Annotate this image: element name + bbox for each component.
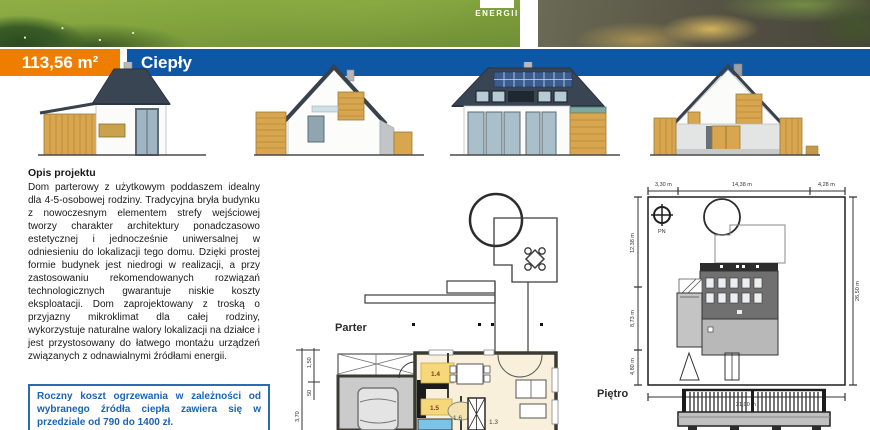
heating-cost-note: Roczny koszt ogrzewania w zależności od … [28, 384, 270, 430]
elevation-front-drawing [36, 62, 211, 159]
site-plan-drawing: 3,30 m 14,38 m 4,28 m 12,38 m 8,73 m 4,8… [570, 175, 870, 430]
upper-floor-label: Piętro [597, 388, 628, 400]
site-dim-left-1: 12,38 m [630, 233, 636, 253]
elevation-side-right-drawing [648, 62, 823, 159]
upper-floor-balcony-fragment [678, 390, 830, 430]
energy-logo-text: ENERGII [452, 9, 542, 18]
compass-label: PN [658, 229, 666, 235]
plan-dim-1: 1,50 [307, 357, 313, 368]
plan-dim-3: 3,70 [295, 411, 301, 422]
energy-logo-icon [480, 0, 514, 8]
catalog-page: ENERGII 113,56 m² Ciepły [0, 0, 870, 430]
car-symbol [358, 388, 398, 430]
site-dim-top-3: 4,28 m [818, 182, 835, 188]
plan-dim-2: 50 [307, 390, 313, 396]
house-dusk-photo [538, 0, 870, 47]
flower-speckles [0, 0, 208, 47]
room-1-3: 1.3 [489, 419, 498, 426]
description-heading: Opis projektu [28, 167, 260, 179]
tree-symbol [470, 194, 522, 246]
ground-floor-label: Parter [335, 322, 368, 334]
site-dim-right: 26,50 m [855, 281, 861, 301]
site-dim-top-1: 3,30 m [655, 182, 672, 188]
site-dim-left-3: 4,80 m [630, 358, 636, 375]
garden-photo: ENERGII [0, 0, 520, 47]
room-1-4: 1.4 [431, 371, 440, 378]
room-1-6: 1.6 [453, 415, 462, 422]
energy-logo: ENERGII [452, 0, 542, 18]
room-1-5: 1.5 [430, 405, 439, 412]
elevation-rear-drawing [448, 62, 623, 159]
elevation-side-left-drawing [252, 62, 427, 159]
site-dim-left-2: 8,73 m [630, 310, 636, 327]
site-dim-top-2: 14,38 m [732, 182, 752, 188]
description-body: Dom parterowy z użytkowym poddaszem idea… [28, 181, 260, 363]
